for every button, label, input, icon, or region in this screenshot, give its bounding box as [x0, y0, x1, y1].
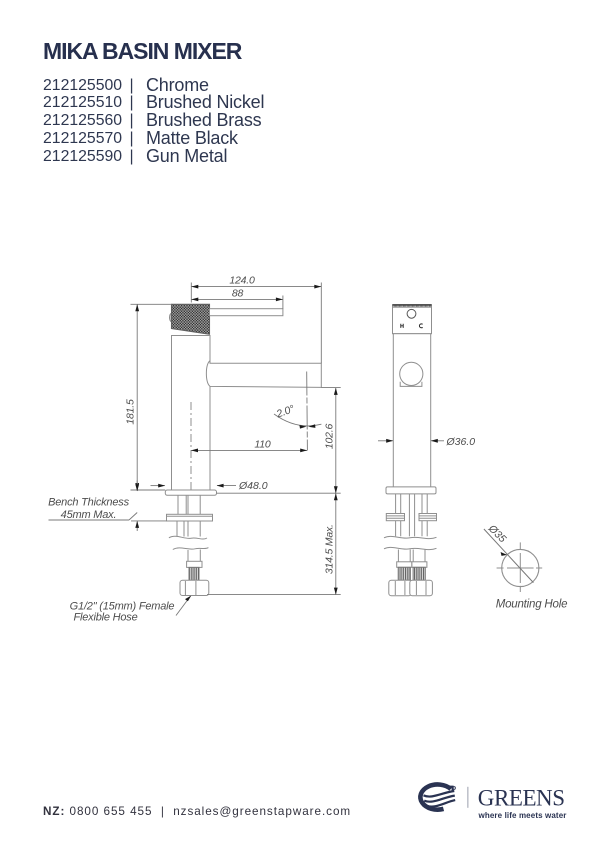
svg-text:124.0: 124.0: [229, 275, 255, 287]
svg-text:Flexible Hose: Flexible Hose: [73, 612, 137, 624]
svg-text:Mounting Hole: Mounting Hole: [496, 599, 568, 611]
svg-text:110: 110: [254, 439, 270, 451]
svg-text:GREENS: GREENS: [478, 786, 565, 811]
svg-text:R: R: [453, 787, 455, 790]
svg-text:45mm Max.: 45mm Max.: [61, 509, 117, 521]
svg-text:314.5 Max.: 314.5 Max.: [324, 524, 336, 574]
svg-text:Ø35: Ø35: [485, 522, 508, 545]
svg-text:102.6: 102.6: [324, 424, 336, 450]
svg-text:Ø36.0: Ø36.0: [446, 436, 476, 448]
svg-text:Ø48.0: Ø48.0: [238, 480, 268, 492]
svg-text:where life meets water: where life meets water: [478, 811, 567, 820]
svg-text:Bench Thickness: Bench Thickness: [48, 497, 129, 509]
svg-text:181.5: 181.5: [125, 399, 137, 425]
svg-text:2.0°: 2.0°: [274, 403, 296, 421]
svg-text:88: 88: [232, 288, 244, 300]
